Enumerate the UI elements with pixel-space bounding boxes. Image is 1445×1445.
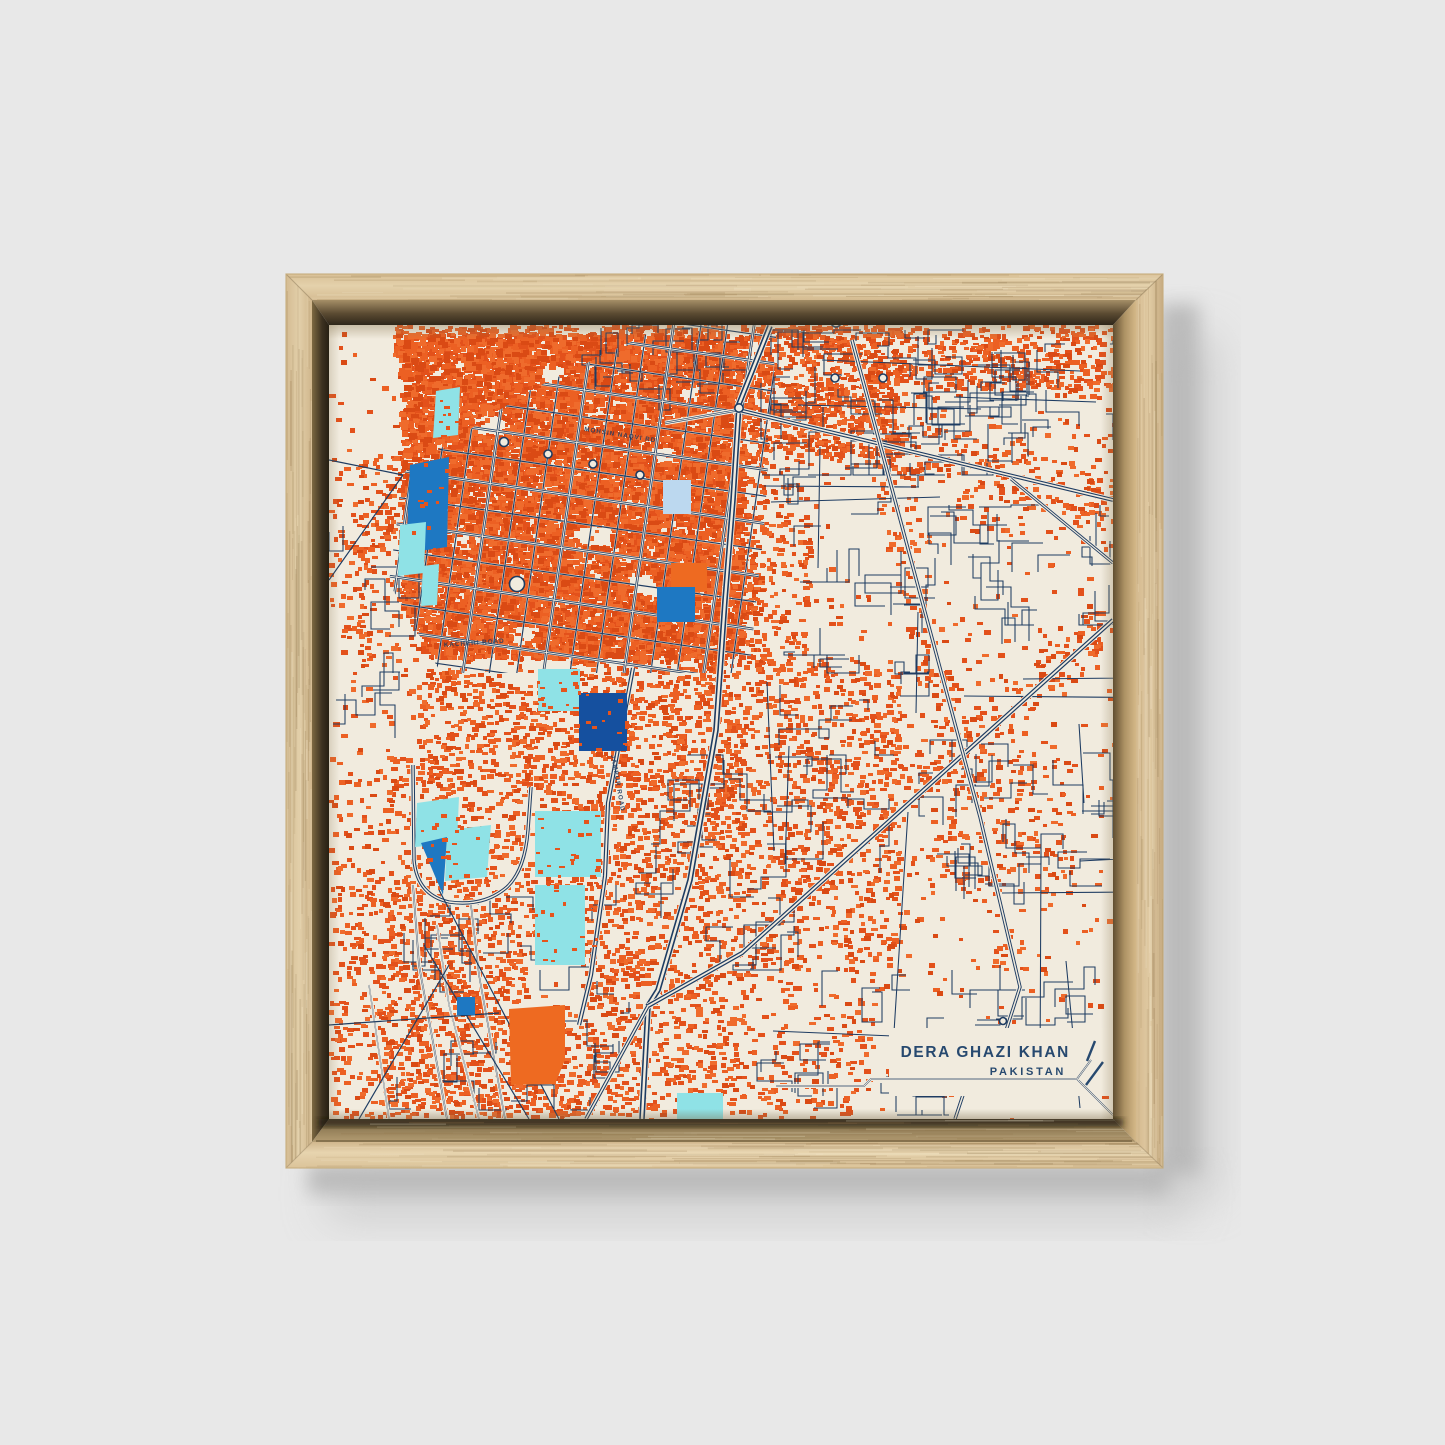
svg-text:PAKISTAN: PAKISTAN [990, 1066, 1066, 1078]
svg-text:DERA GHAZI KHAN: DERA GHAZI KHAN [901, 1044, 1070, 1061]
